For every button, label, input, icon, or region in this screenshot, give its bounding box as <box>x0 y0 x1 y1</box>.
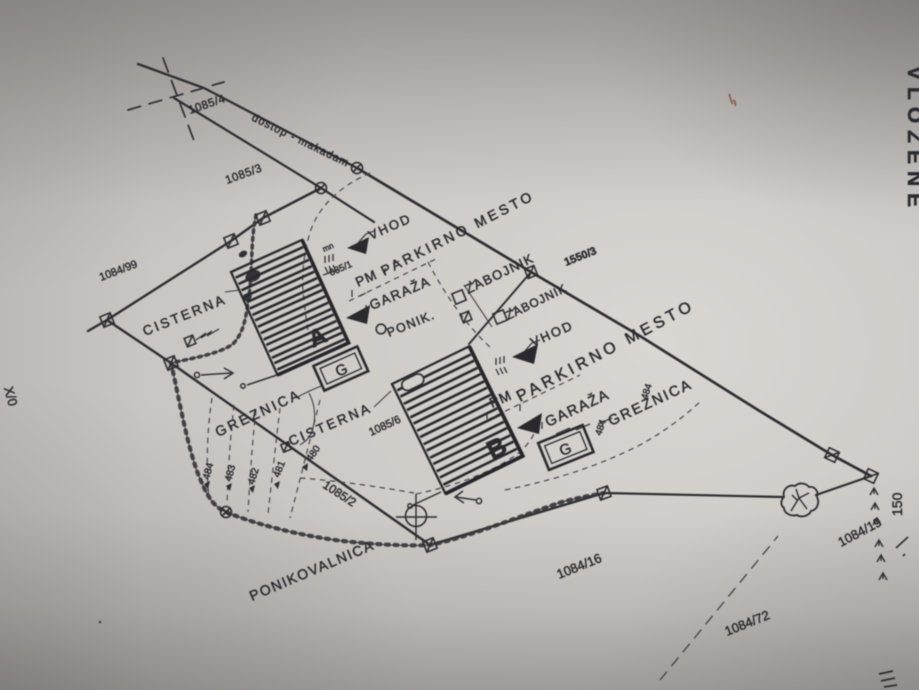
svg-text:VLOŽENE: VLOŽENE <box>903 66 919 214</box>
svg-text:150: 150 <box>889 492 905 516</box>
